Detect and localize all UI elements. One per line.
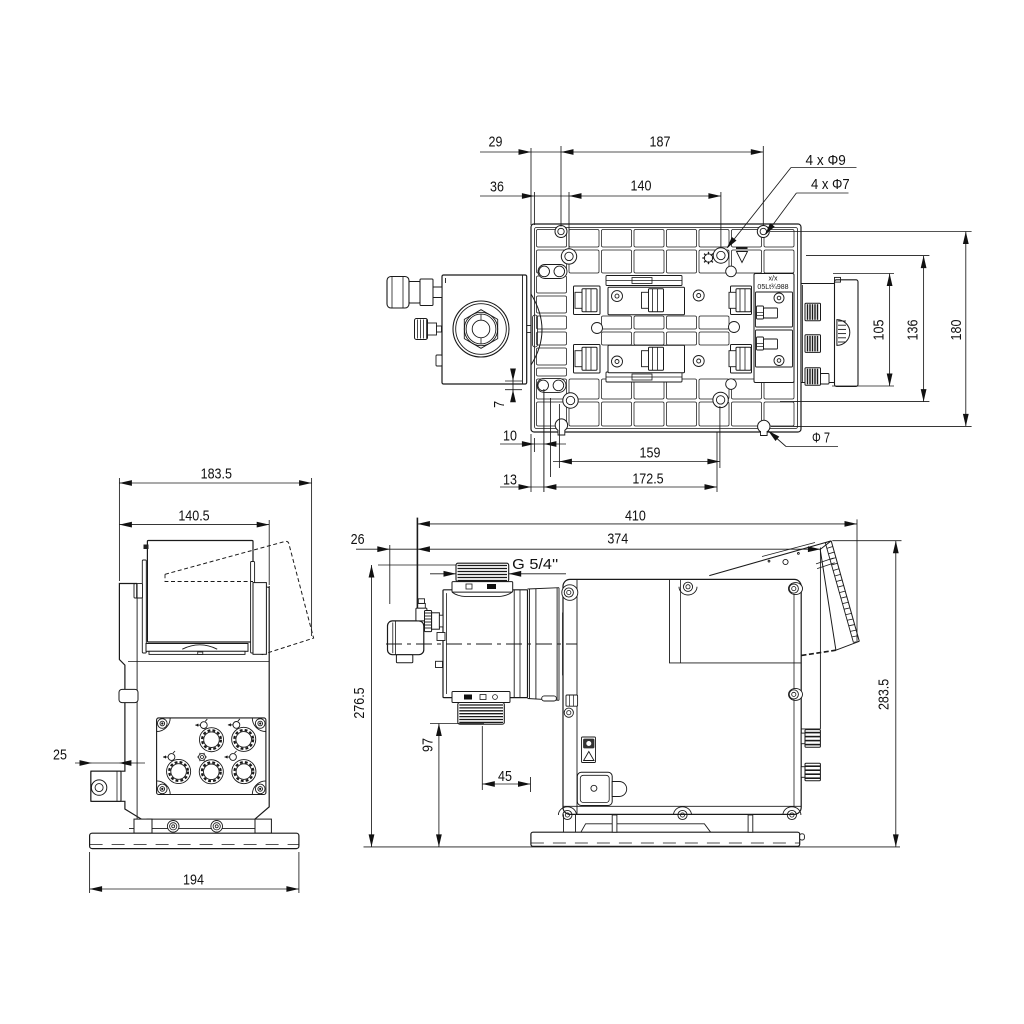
svg-text:194: 194 bbox=[183, 871, 204, 888]
svg-text:180: 180 bbox=[948, 320, 965, 341]
svg-text:7: 7 bbox=[491, 401, 508, 408]
svg-text:26: 26 bbox=[351, 531, 365, 548]
svg-text:4 x Φ9: 4 x Φ9 bbox=[806, 152, 846, 169]
svg-text:05Lt¾988: 05Lt¾988 bbox=[757, 284, 788, 291]
svg-text:276.5: 276.5 bbox=[351, 687, 368, 718]
svg-text:x/x: x/x bbox=[769, 276, 778, 283]
svg-text:45: 45 bbox=[498, 768, 512, 785]
svg-text:13: 13 bbox=[503, 471, 517, 488]
svg-text:283.5: 283.5 bbox=[875, 679, 892, 710]
svg-text:4 x Φ7: 4 x Φ7 bbox=[811, 176, 850, 193]
svg-text:410: 410 bbox=[625, 507, 646, 524]
svg-text:97: 97 bbox=[420, 738, 437, 752]
svg-text:183.5: 183.5 bbox=[201, 465, 232, 482]
svg-text:29: 29 bbox=[489, 134, 503, 151]
svg-text:374: 374 bbox=[607, 531, 628, 548]
svg-text:G 5/4'': G 5/4'' bbox=[512, 556, 558, 573]
svg-text:140: 140 bbox=[631, 177, 652, 194]
svg-text:36: 36 bbox=[490, 178, 504, 195]
svg-text:172.5: 172.5 bbox=[632, 471, 663, 488]
svg-text:140.5: 140.5 bbox=[178, 507, 209, 524]
svg-text:159: 159 bbox=[640, 444, 661, 461]
svg-text:10: 10 bbox=[503, 427, 517, 444]
svg-text:25: 25 bbox=[53, 747, 67, 764]
svg-text:136: 136 bbox=[905, 320, 922, 341]
svg-text:105: 105 bbox=[871, 320, 888, 341]
svg-text:Φ 7: Φ 7 bbox=[812, 430, 830, 447]
svg-text:187: 187 bbox=[650, 134, 671, 151]
